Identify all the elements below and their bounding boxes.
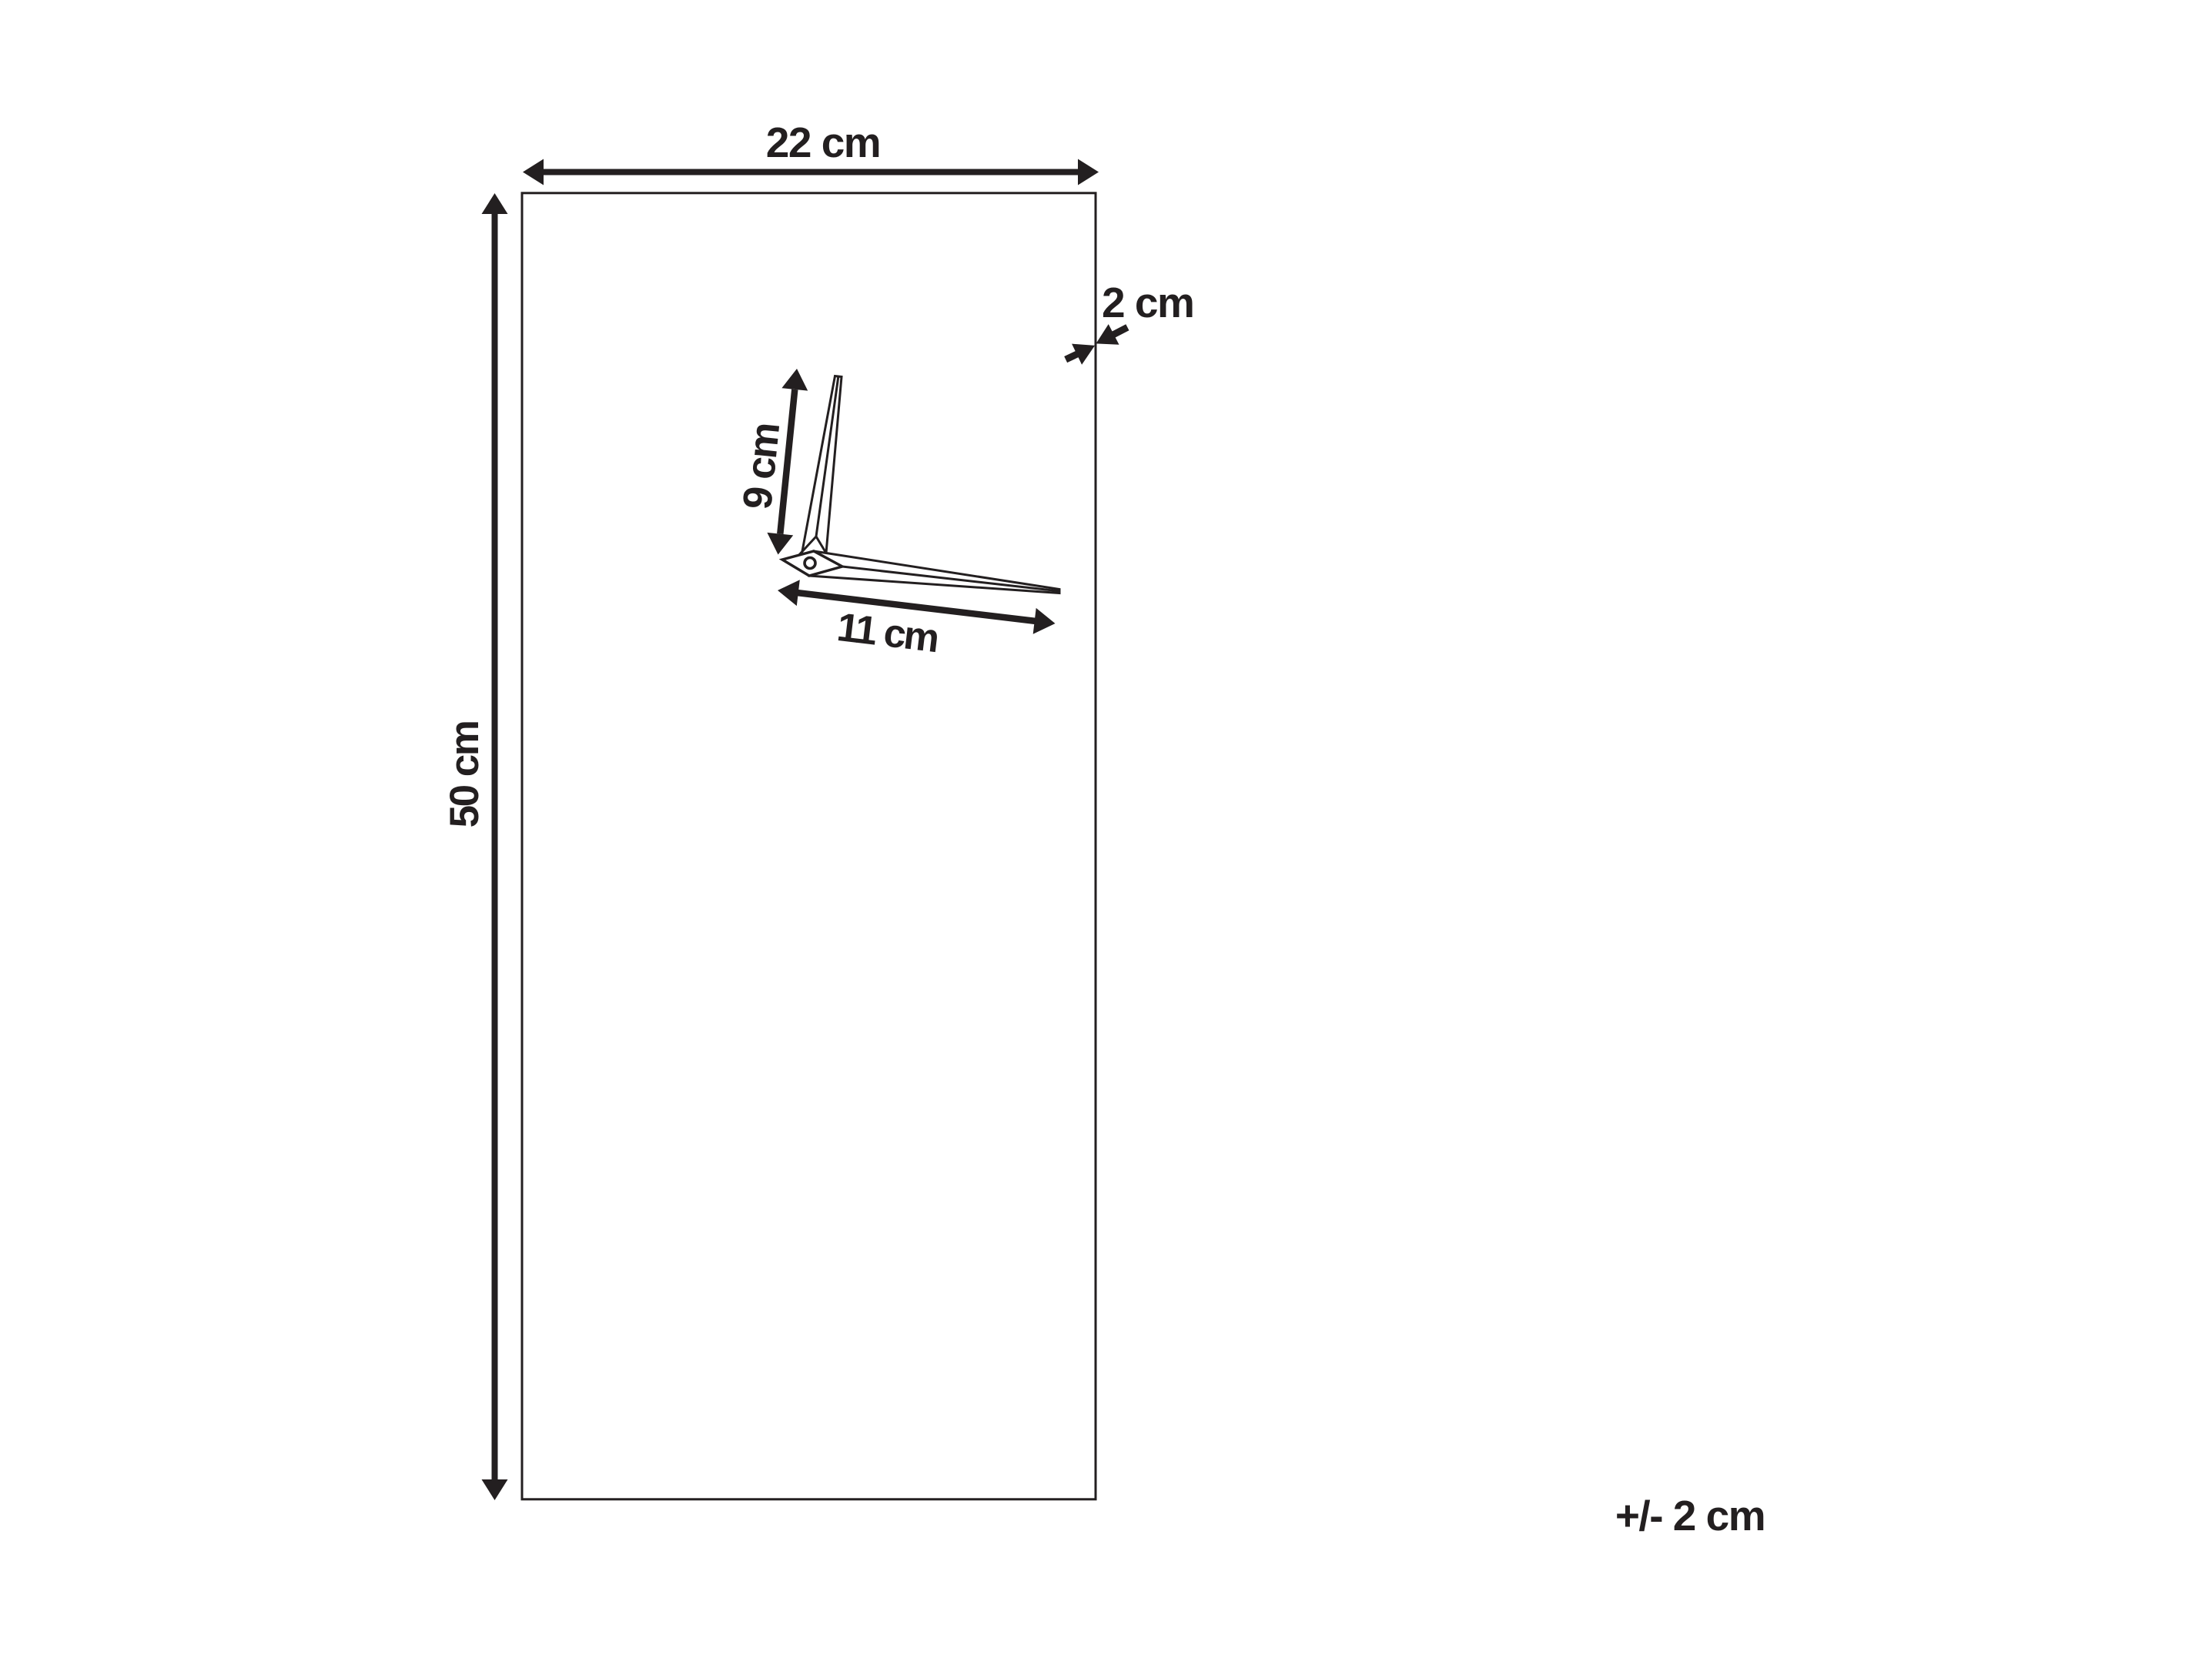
svg-text:50 cm: 50 cm (442, 722, 487, 828)
svg-text:+/- 2 cm: +/- 2 cm (1615, 1492, 1765, 1539)
svg-text:2 cm: 2 cm (1102, 279, 1193, 326)
svg-text:9 cm: 9 cm (735, 422, 788, 511)
svg-text:22 cm: 22 cm (766, 119, 880, 166)
